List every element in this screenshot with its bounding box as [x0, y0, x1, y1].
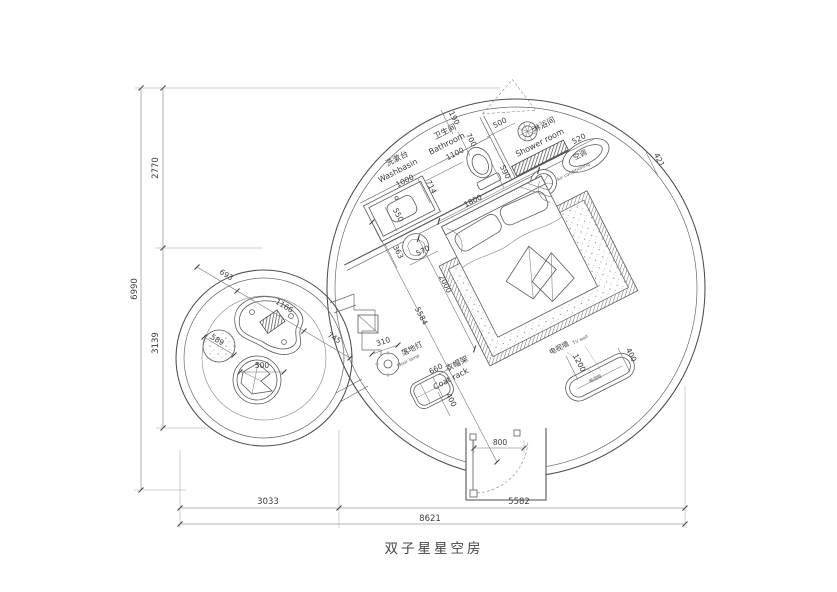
dim-3139: 3139	[151, 332, 161, 354]
floor-plan-page: 洗漱台 Washbasin 1000 卫生间 Bathroom 1100 淋浴间…	[0, 0, 837, 592]
dim-693: 693	[218, 267, 235, 282]
dim-800: 800	[493, 438, 508, 447]
floor-plan-canvas: 洗漱台 Washbasin 1000 卫生间 Bathroom 1100 淋浴间…	[0, 0, 837, 592]
dim-310: 310	[375, 335, 392, 348]
tv-wall-label-cn: 电视墙	[547, 339, 570, 357]
dim-2770: 2770	[151, 157, 161, 179]
dim-8621: 8621	[419, 514, 441, 524]
dim-5582: 5582	[508, 497, 530, 507]
dim-pod-500: 500	[255, 361, 270, 370]
suite-rotated	[304, 54, 707, 469]
tv-wall-label-en: TV wall	[571, 334, 589, 347]
dim-rack-400: 400	[444, 391, 459, 408]
dim-6990: 6990	[130, 278, 140, 300]
toilet	[461, 143, 501, 190]
floor-lamp	[370, 343, 402, 378]
dim-421: 421	[652, 151, 667, 168]
lamp-label-cn: 落地灯	[399, 339, 424, 358]
dim-700: 700	[464, 131, 479, 148]
drawing-title: 双子星星空房	[385, 541, 484, 557]
dim-3033: 3033	[257, 497, 279, 507]
dim-5584: 5584	[413, 305, 430, 326]
